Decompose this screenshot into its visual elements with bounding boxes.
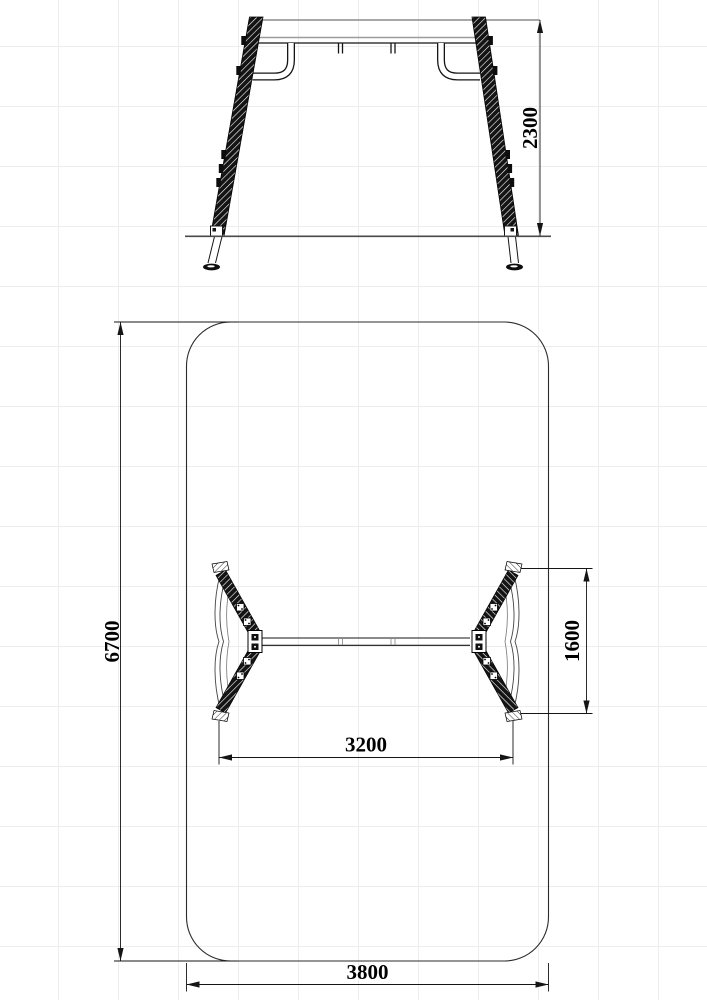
arrowhead-right-icon [500,754,513,760]
swing-hangers [339,44,396,54]
arrowhead-down-icon [537,223,543,236]
dim-frame-span-label: 3200 [345,733,387,757]
left-corner-brace [253,43,292,77]
arrowhead-right-icon [536,981,549,987]
frame-tube-profile [220,578,226,706]
front-elevation-view: 2300 [185,17,551,270]
arrowhead-left-icon [219,754,232,760]
a-frame-plan-left [212,562,262,722]
dimension-frame-span: 3200 [219,721,513,765]
arrowhead-up-icon [537,20,543,33]
dimension-frame-height: 2300 [518,20,543,236]
apex-connector-plate [248,631,262,653]
a-frame-plan-right [472,562,522,722]
foot-cap-lower [212,711,229,722]
dim-frame-depth-label: 1600 [560,620,584,662]
swing-top-beam [251,20,540,43]
frame-tube-profile [215,575,220,708]
dimension-zone-length: 6700 [100,322,238,961]
left-ground-anchor [203,237,222,271]
arrowhead-down-icon [583,701,589,714]
leg-step-brackets [216,36,514,187]
technical-drawing: 2300 [0,0,707,1000]
left-base-joint [211,226,223,237]
left-leg [211,17,264,236]
foot-cap-upper [212,562,229,573]
arrowhead-left-icon [187,981,200,987]
dimension-zone-width: 3800 [187,960,549,992]
safety-zone-outline [187,322,549,961]
dim-frame-height-label: 2300 [518,107,542,149]
arrowhead-up-icon [583,569,589,582]
drawing-sheet: 2300 [0,0,707,1000]
hanger-marks-plan [339,639,396,645]
arrowhead-down-icon [117,948,123,961]
dim-zone-width-label: 3800 [347,960,389,984]
right-base-joint [505,226,517,237]
plan-view: 6700 1600 3200 3800 [100,322,593,992]
beam-plan [262,638,470,645]
right-corner-brace [441,43,480,77]
dim-zone-length-label: 6700 [100,621,124,663]
arrowhead-up-icon [117,322,123,335]
right-ground-anchor [506,237,523,271]
right-leg [472,17,519,236]
dimension-frame-depth: 1600 [521,569,593,714]
